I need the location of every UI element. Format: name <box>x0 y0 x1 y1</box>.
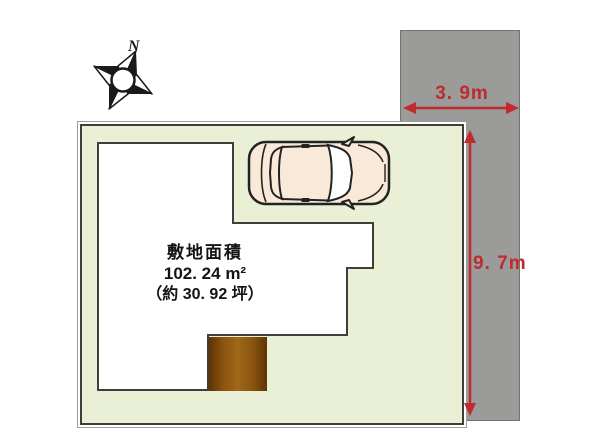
site-plan-diagram: N 敷地面積 102. 24 m² （約 30. 92 坪） 3. 9m 9. … <box>0 0 600 443</box>
site-area-block: 敷地面積 102. 24 m² （約 30. 92 坪） <box>105 242 305 305</box>
compass-north: N <box>88 38 160 120</box>
dimension-width-label: 3. 9m <box>404 84 520 103</box>
site-area-sqm: 102. 24 m² <box>105 263 305 284</box>
north-label: N <box>128 38 140 56</box>
site-area-title: 敷地面積 <box>105 242 305 263</box>
site-area-tsubo: （約 30. 92 坪） <box>105 284 305 305</box>
dimension-depth-label: 9. 7m <box>473 254 527 273</box>
